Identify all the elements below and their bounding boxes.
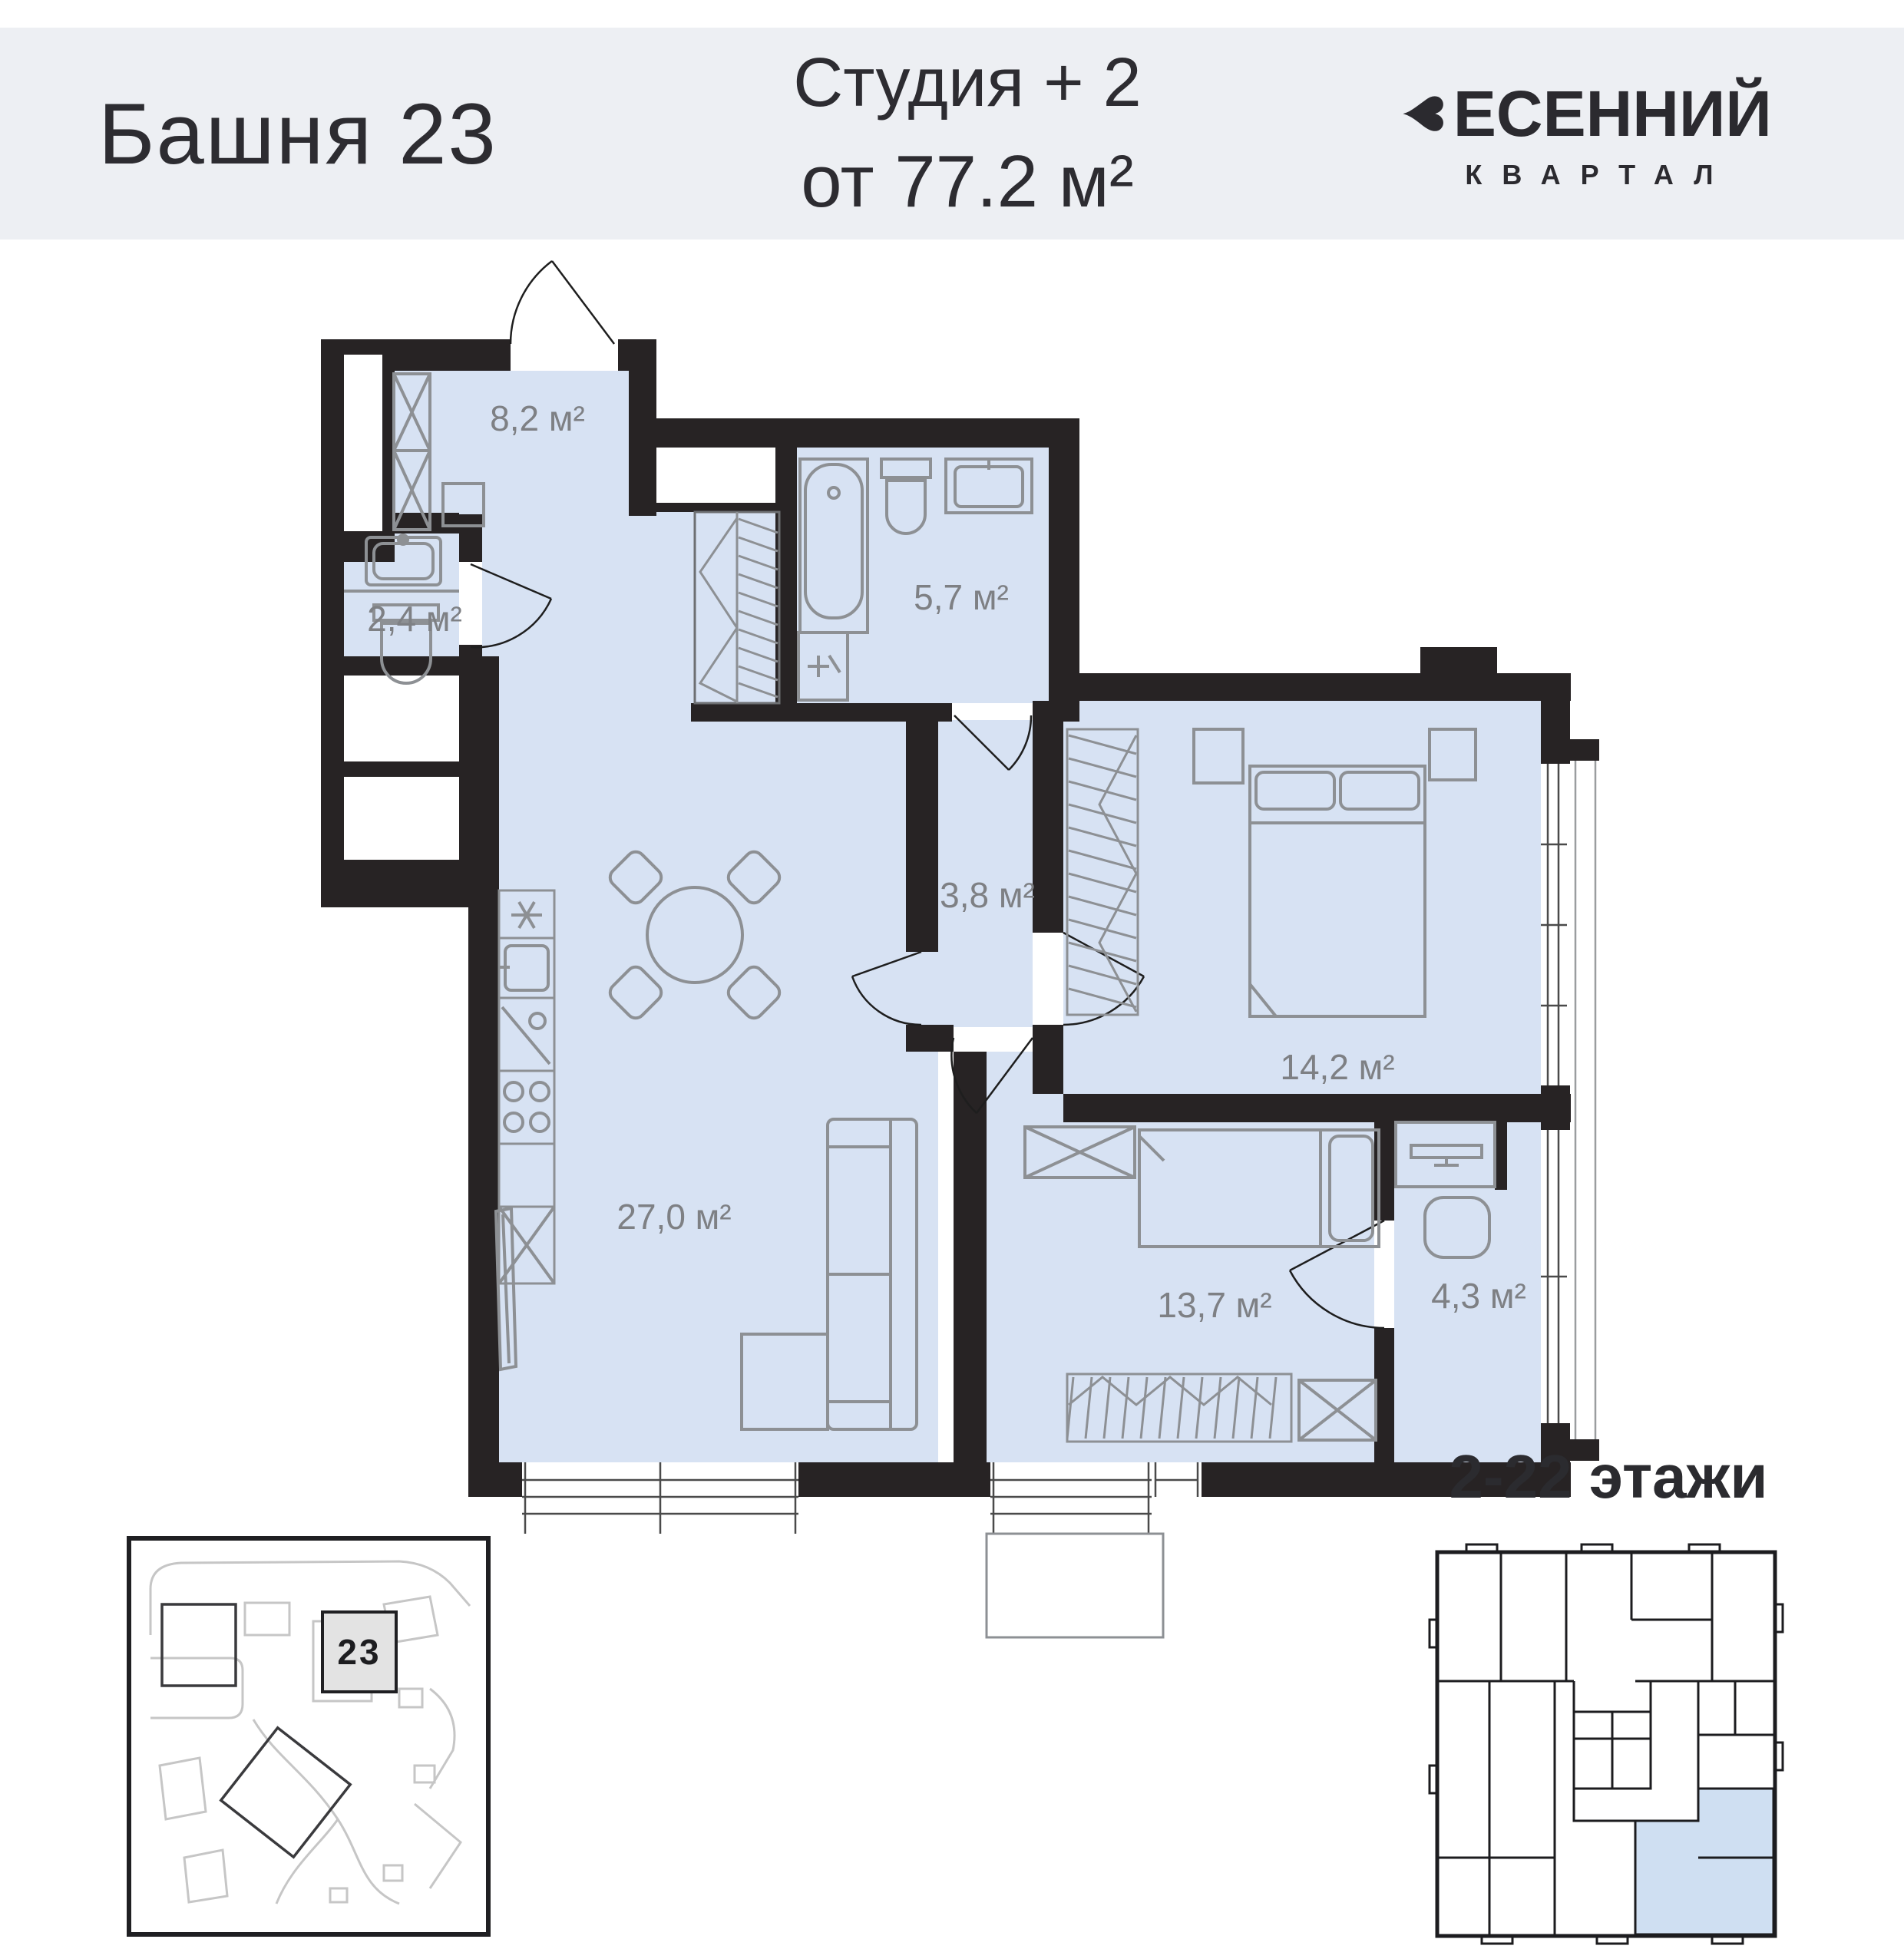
room-strip-fill [482, 510, 779, 725]
room-label-bedroom2: 13,7 м² [1157, 1284, 1271, 1326]
room-label-hallway: 8,2 м² [490, 398, 585, 439]
facade-strip [1567, 739, 1599, 1461]
apartment-area: от 77.2 м² [801, 140, 1133, 224]
window-living-icon [522, 1462, 798, 1534]
room-living-fill [495, 703, 938, 1462]
window-bedroom2-icon [990, 1462, 1152, 1534]
brand-logo: ♥ ЕСЕННИЙ КВАРТАЛ [1336, 28, 1843, 239]
room-corridor-fill [938, 720, 1033, 1027]
floors-range-label: 2-22 этажи [1405, 1442, 1812, 1512]
page-title: Башня 23 [98, 28, 497, 239]
room-label-bedroom: 14,2 м² [1280, 1046, 1394, 1088]
floorplan-sheet: { "header": { "tower": "Башня 23", "type… [0, 0, 1904, 1949]
room-label-bathroom: 5,7 м² [914, 576, 1009, 618]
room-label-wc: 2,4 м² [367, 598, 462, 639]
room-bedroom-fill [1063, 701, 1541, 1094]
room-label-corridor: 3,8 м² [940, 874, 1035, 916]
heart-icon: ♥ [1397, 93, 1459, 135]
room-label-living: 27,0 м² [616, 1196, 731, 1237]
apartment-type: Студия + 2 [793, 44, 1141, 123]
room-label-study: 4,3 м² [1431, 1275, 1526, 1316]
key-plan [1430, 1544, 1783, 1944]
window-study-icon [1541, 1130, 1567, 1423]
balcony-door-icon [1152, 1462, 1202, 1497]
brand-subtitle: КВАРТАЛ [1445, 159, 1733, 191]
apartment-summary: Студия + 2 от 77.2 м² [768, 28, 1167, 239]
plan-graphics [0, 0, 1904, 1949]
site-plan [129, 1538, 488, 1934]
site-building-number: 23 [337, 1631, 381, 1673]
balcony-outline [987, 1534, 1163, 1637]
window-bedroom-icon [1541, 764, 1567, 1085]
brand-name: ЕСЕННИЙ [1453, 77, 1772, 151]
entrance-door-icon [511, 261, 614, 344]
